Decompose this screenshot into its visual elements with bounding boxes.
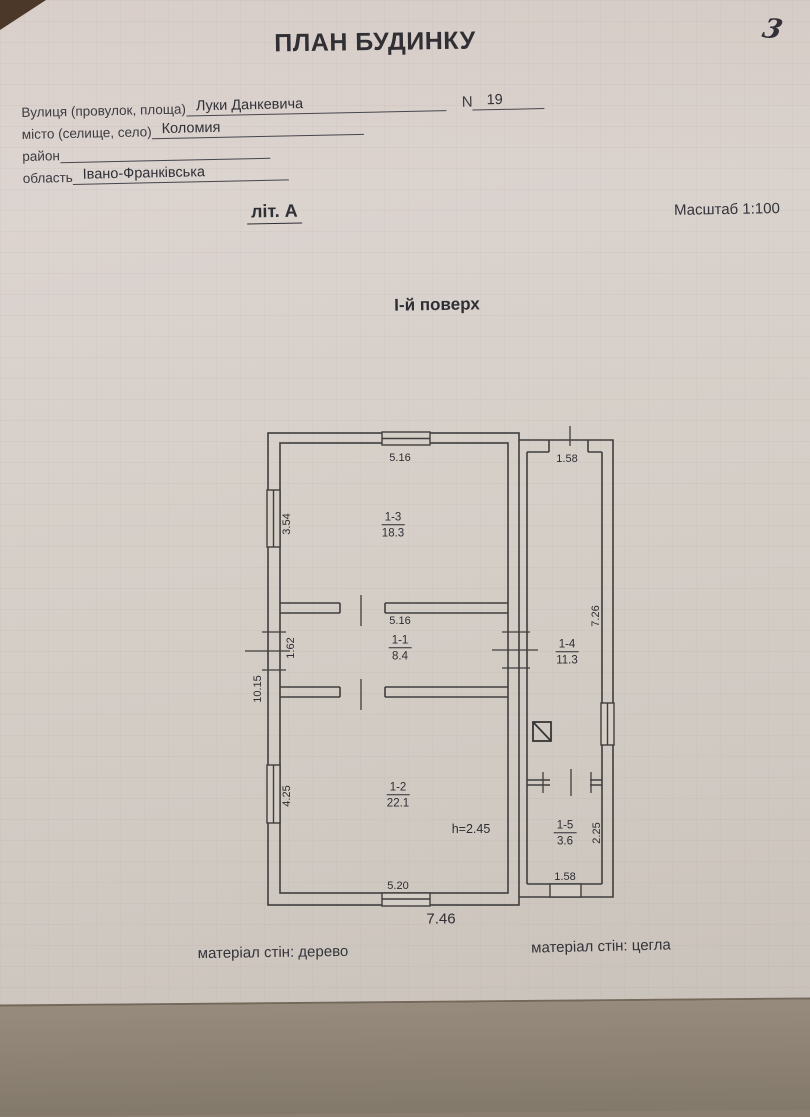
dim-room12-left: 4.25 xyxy=(281,785,293,806)
dim-top-width: 5.16 xyxy=(389,452,410,464)
paper-sheet: ПЛАН БУДИНКУ 3 Вулиця (провулок, площа) … xyxy=(0,0,810,1006)
dim-total-bottom: 7.46 xyxy=(426,911,455,928)
material-caption-brick: матеріал стін: цегла xyxy=(486,935,716,957)
building-letter-label: літ. А xyxy=(247,201,302,225)
room-area: 11.3 xyxy=(556,652,579,666)
room-id: 1-5 xyxy=(554,819,577,833)
dim-room13-left: 3.54 xyxy=(281,513,293,534)
brick-top-opening-jambs xyxy=(549,440,588,452)
partition-11-12 xyxy=(280,687,508,697)
room-label-1-1: 1-1 8.4 xyxy=(389,634,412,662)
house-number-value: 19 xyxy=(472,91,544,111)
partition-13-11 xyxy=(280,603,508,613)
room-id: 1-1 xyxy=(389,634,412,648)
room-area: 22.1 xyxy=(387,795,410,809)
ceiling-height-note: h=2.45 xyxy=(452,822,491,836)
city-label: місто (селище, село) xyxy=(22,124,152,142)
material-caption-wood: матеріал стін: дерево xyxy=(158,942,388,963)
dim-room11-left: 1.62 xyxy=(285,637,297,658)
room-area: 18.3 xyxy=(382,525,405,539)
floor-title: І-й поверх xyxy=(337,294,537,317)
room-label-1-5: 1-5 3.6 xyxy=(554,819,577,847)
dim-bottom-width: 5.20 xyxy=(387,880,408,892)
dim-wing-right: 7.26 xyxy=(590,605,602,626)
address-form: Вулиця (провулок, площа) Луки Данкевича … xyxy=(21,86,583,186)
room-id: 1-3 xyxy=(382,511,405,525)
photographed-document: { "page": { "page_number": "3", "title":… xyxy=(0,0,810,1080)
document-title: ПЛАН БУДИНКУ xyxy=(180,25,570,59)
room-label-1-4: 1-4 11.3 xyxy=(556,638,579,666)
furnace-symbol xyxy=(533,722,551,741)
room-area: 8.4 xyxy=(389,648,412,662)
region-value: Івано-Франківська xyxy=(73,162,289,185)
dim-room11-width: 5.16 xyxy=(389,615,410,627)
floor-plan-drawing xyxy=(240,412,640,932)
floor-plan: 1-3 18.3 1-1 8.4 1-2 22.1 1-4 11.3 1-5 3… xyxy=(240,412,640,932)
furnace-diagonal xyxy=(533,722,551,741)
district-label: район xyxy=(22,148,60,164)
right-door-ticks xyxy=(492,632,538,668)
region-label: область xyxy=(23,170,73,186)
house-number-label: N xyxy=(462,94,473,111)
room-label-1-2: 1-2 22.1 xyxy=(387,781,410,809)
wing-partition-ticks xyxy=(543,769,591,796)
dim-wing-bottom-width: 1.58 xyxy=(554,871,575,883)
dim-room15-right: 2.25 xyxy=(591,822,603,843)
handwritten-page-number: 3 xyxy=(759,13,785,45)
dim-wing-top-width: 1.58 xyxy=(556,453,577,465)
room-id: 1-2 xyxy=(387,781,410,795)
room-id: 1-4 xyxy=(556,638,579,652)
scale-label: Масштаб 1:100 xyxy=(674,200,780,219)
dim-total-left: 10.15 xyxy=(252,675,264,703)
table-surface xyxy=(0,997,810,1116)
room-area: 3.6 xyxy=(554,833,577,847)
room-label-1-3: 1-3 18.3 xyxy=(382,511,405,539)
wing-bottom-door xyxy=(550,884,581,897)
